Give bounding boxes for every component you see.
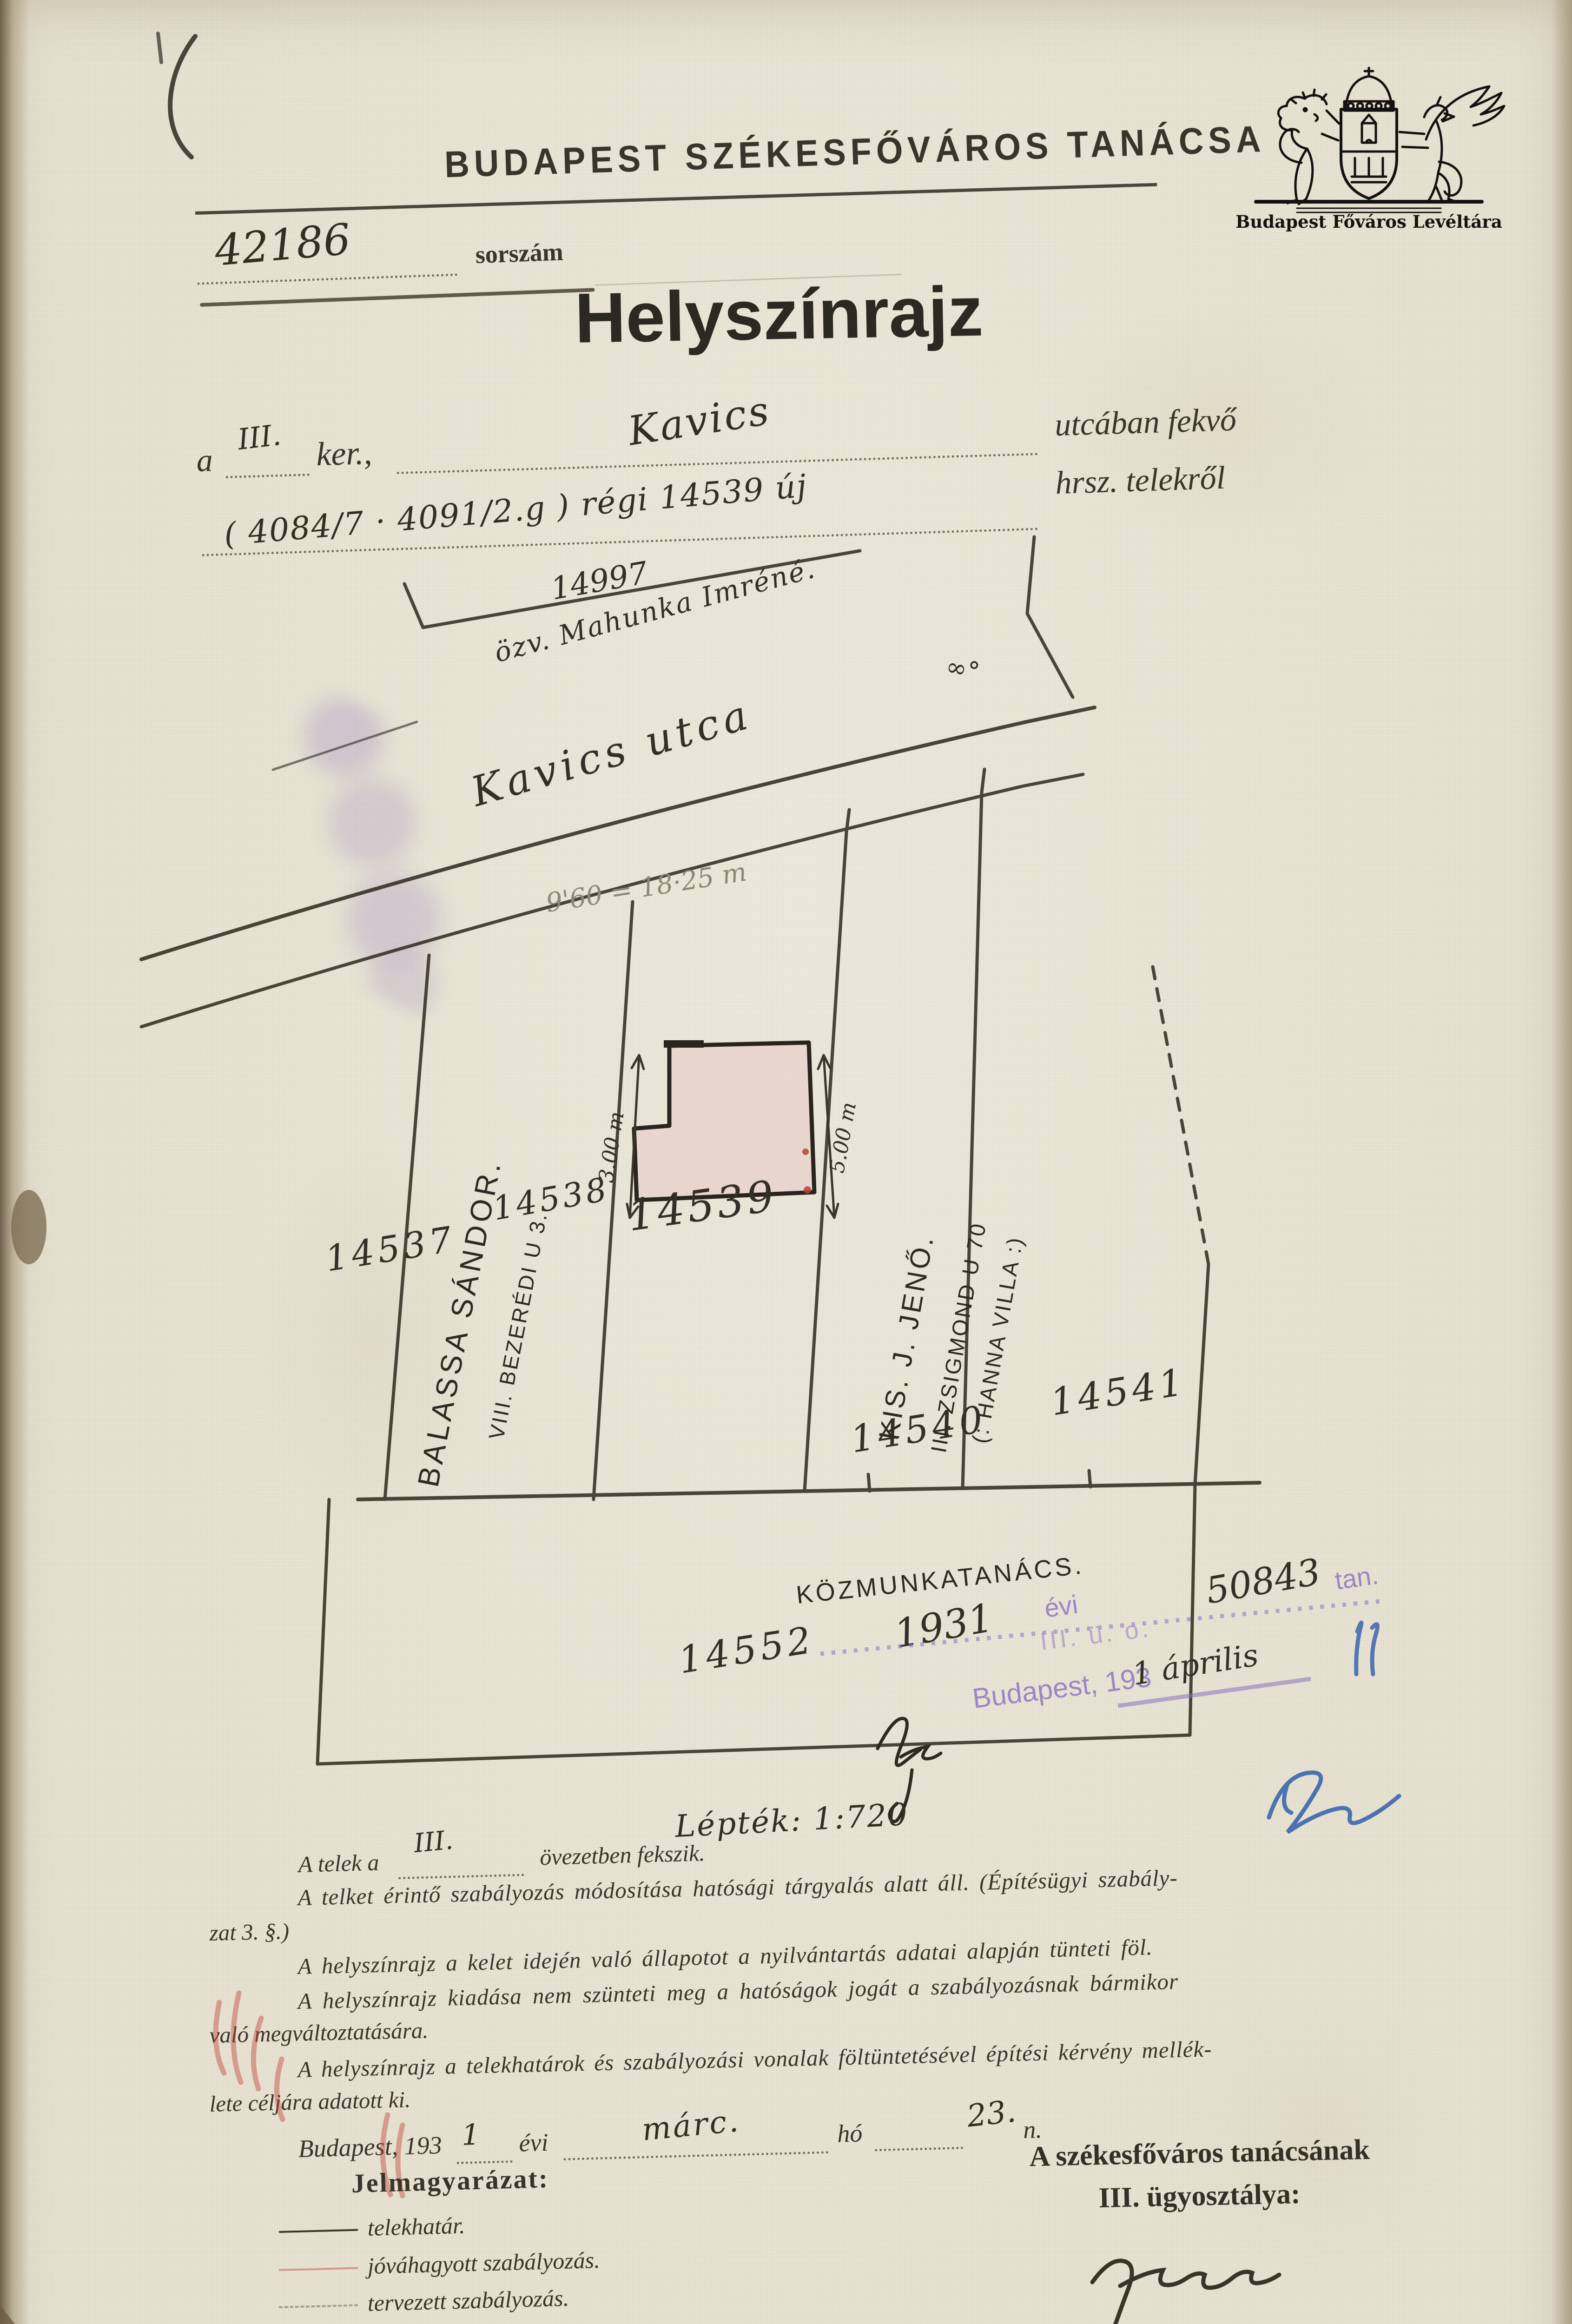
serial-dotted-line [197, 273, 457, 285]
block-14552-left [317, 1499, 329, 1764]
site-plan-drawing: 14997 özv. Mahunka Imréné. Kavics utca ∞… [209, 535, 1441, 1789]
legend-heading: Jelmagyarázat: [351, 2163, 549, 2199]
authority-label: KÖZMUNKATANÁCS. [795, 1551, 1085, 1609]
parcels-bottom-line [358, 1483, 1260, 1499]
note-owner: özv. Mahunka Imréné. [491, 552, 819, 668]
stamp-evi-purple: évi [1043, 1590, 1080, 1623]
legend-item: tervezett szabályozás. [367, 2284, 569, 2317]
zone-dotted [398, 1874, 524, 1879]
serial-label: sorszám [475, 237, 564, 269]
block-14552-bottom [317, 1735, 1190, 1764]
legend-sample-planned [279, 2304, 358, 2308]
district-entry: III. [236, 418, 283, 456]
zone-post: övezetben fekszik. [540, 1839, 706, 1870]
wedge-line [1027, 537, 1073, 697]
wedge-line [404, 584, 423, 627]
red-dot [804, 1186, 811, 1194]
upper-boundary-faint [273, 722, 417, 770]
parcel-label-14541: 14541 [1047, 1360, 1189, 1424]
date-n: n. [1023, 2115, 1042, 2144]
red-pencil-marks [191, 1975, 479, 2245]
paper-hole-spot [11, 1190, 46, 1264]
page-title: Helyszínrajz [574, 271, 984, 359]
owner-left-name: BALASSA SÁNDOR. [411, 1156, 508, 1490]
header-underline [195, 183, 1157, 215]
right-boundary-dashed [1153, 967, 1209, 1264]
stamp-number-hand: 50843 [1203, 1551, 1324, 1612]
signature-blue [1269, 1773, 1399, 1832]
parcel-label-14552: 14552 [675, 1618, 817, 1682]
zone-pre: A telek a [298, 1849, 379, 1878]
serial-number: 42186 [213, 214, 353, 276]
date-stamp-hand: 1 április [1129, 1637, 1261, 1692]
form-street-suffix: utcában fekvő [1054, 402, 1237, 444]
legend-item: jóváhagyott szabályozás. [367, 2246, 600, 2279]
parcel-label-14537: 14537 [323, 1218, 458, 1280]
header-organization: BUDAPEST SZÉKESFŐVÁROS TANÁCSA [444, 118, 1266, 186]
archive-stamp-caption: Budapest Főváros Levéltára [1235, 211, 1502, 232]
street-entry: Kavics [625, 387, 774, 455]
signature-chief-engineer [1064, 2226, 1362, 2324]
form-ker: ker., [316, 434, 372, 474]
legend-sample-approved [279, 2267, 358, 2271]
pen-mark-topleft [149, 28, 228, 177]
zone-value: III. [412, 1825, 454, 1859]
date-ho: hó [837, 2119, 863, 2148]
date-evi: évi [519, 2128, 549, 2158]
date-month-hand: márc. [641, 2103, 742, 2148]
scanned-document-page: BUDAPEST SZÉKESFŐVÁROS TANÁCSA [0, 0, 1572, 2324]
archive-stamp: Budapest Főváros Levéltára [1227, 65, 1511, 232]
office-line-2: III. ügyosztálya: [967, 2175, 1432, 2218]
lion-supporter [1278, 90, 1339, 204]
owner-left-address: VIII. BEZERÉDI U 3. [484, 1210, 552, 1442]
paper-right-edge [1551, 0, 1572, 2324]
frontage-note: 9'60 = 18·25 m [544, 857, 749, 918]
building-footprint [634, 1040, 814, 1200]
red-dot [802, 1149, 809, 1155]
date-dotted [563, 2151, 828, 2160]
parcel-label-14540: 14540 [847, 1397, 989, 1461]
stamp-year-hand: 1931 [891, 1595, 997, 1657]
griffin-supporter [1400, 86, 1504, 203]
district-dotted [226, 474, 310, 478]
form-hrsz-suffix: hrsz. telekről [1055, 460, 1226, 502]
north-mark: ∞° [943, 651, 982, 687]
date-day-hand: 23. [965, 2093, 1017, 2134]
form-prefix: a [196, 442, 213, 480]
stamp-tan-purple: tan. [1333, 1560, 1380, 1595]
legend-item: telekhatár. [367, 2212, 465, 2241]
date-dotted [875, 2147, 963, 2152]
legal-line: zat 3. §.) [209, 1918, 290, 1946]
right-boundary [1195, 1264, 1209, 1484]
blue-day-mark [1356, 1623, 1378, 1674]
paper-left-edge [0, 0, 30, 2324]
building-top-mark [664, 1040, 704, 1048]
dim-right-label: 5.00 m [825, 1100, 861, 1175]
